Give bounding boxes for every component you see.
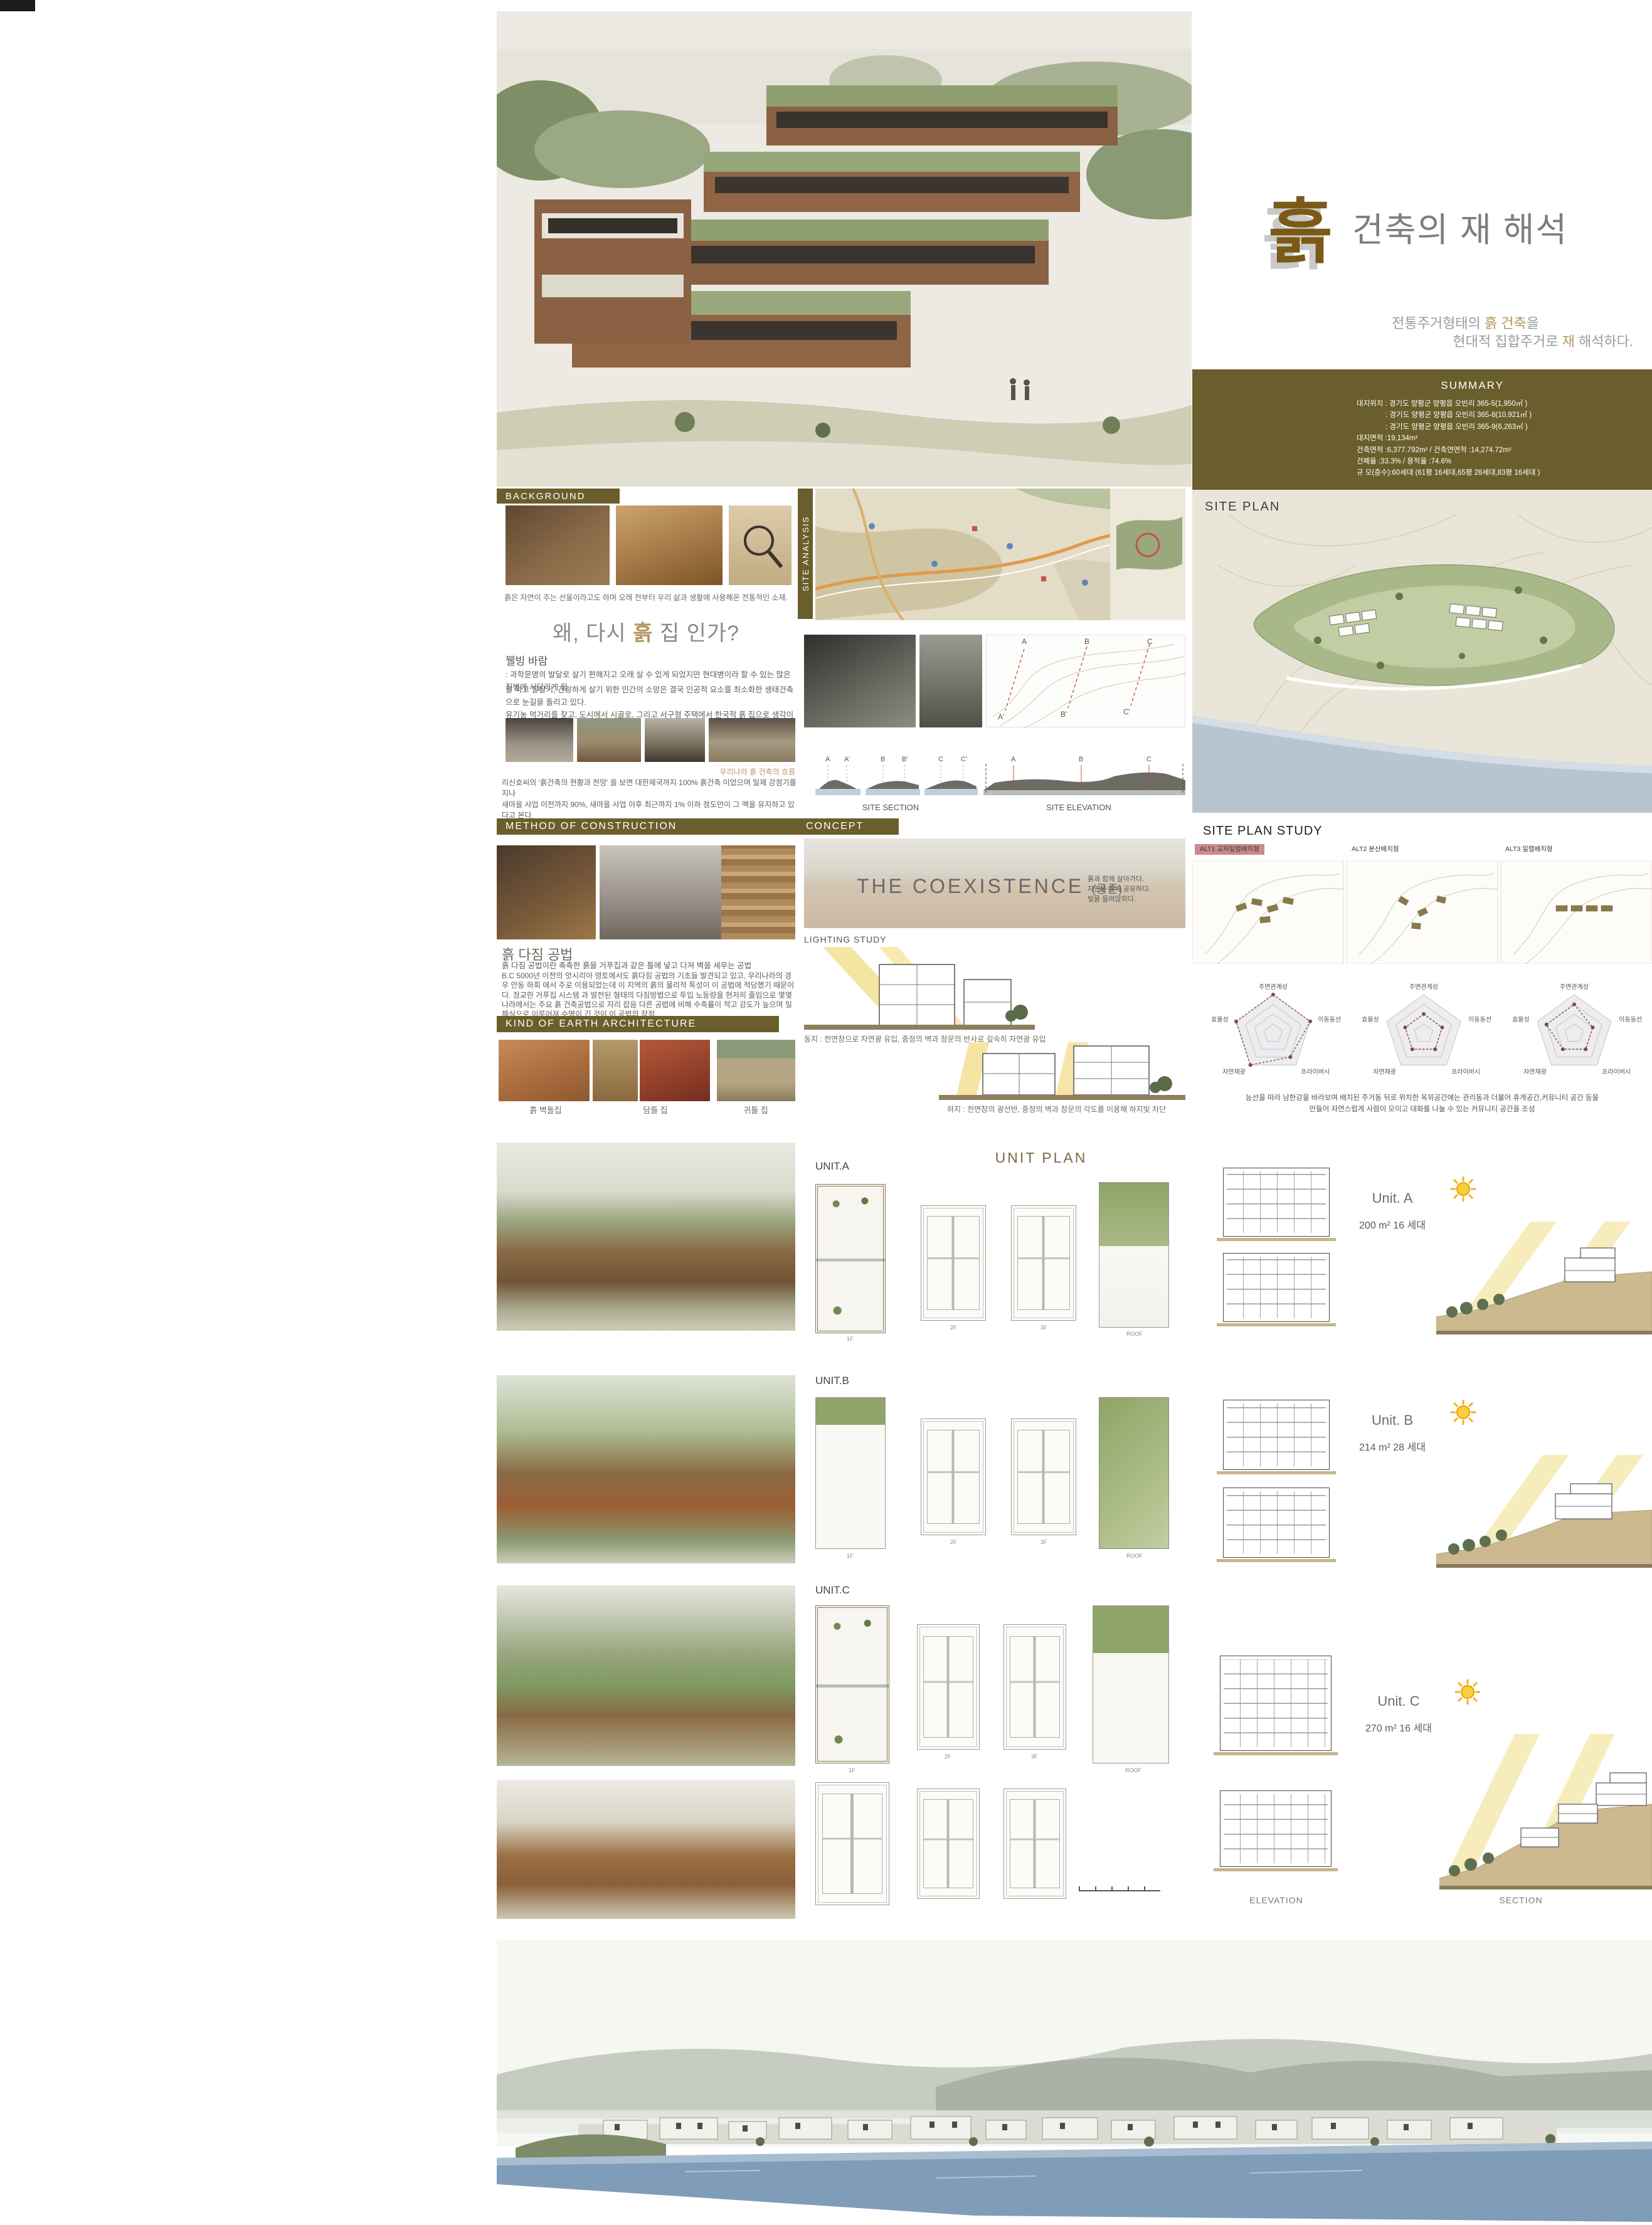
study-heading: SITE PLAN STUDY bbox=[1203, 824, 1323, 838]
svg-text:B: B bbox=[1079, 756, 1083, 763]
svg-text:B': B' bbox=[902, 756, 908, 763]
page-title: 건축의 재 해석 bbox=[1352, 202, 1568, 251]
why-heading: 왜, 다시 흙 집 인가? bbox=[497, 616, 795, 647]
unit-a-floor-2: 2F bbox=[950, 1324, 957, 1331]
section-label: SECTION bbox=[1474, 1895, 1568, 1905]
construction-photo-1 bbox=[497, 845, 596, 939]
alt1-label: ALT1 교차일렬배치형 bbox=[1195, 844, 1264, 855]
site-analysis-label: SITE ANALYSIS bbox=[801, 492, 810, 615]
lighting-summer-caption: 하지 : 전면창의 광선반, 중정의 벽과 창문의 각도를 이용해 하지빛 차단 bbox=[947, 1104, 1166, 1114]
svg-text:자연채광: 자연채광 bbox=[1523, 1069, 1547, 1076]
hanok-photo-1 bbox=[506, 718, 573, 762]
unit-c-floor-roof: ROOF bbox=[1125, 1767, 1141, 1773]
unit-c-elevation-1 bbox=[1220, 1656, 1332, 1751]
svg-text:주변관계성: 주변관계성 bbox=[1409, 983, 1438, 991]
unit-a-info: 200 m² 16 세대 bbox=[1336, 1217, 1449, 1232]
summary-line: 건폐율 :33.3% / 용적율 :74.6% bbox=[1357, 456, 1620, 467]
svg-text:효율성: 효율성 bbox=[1211, 1016, 1229, 1023]
kind-photo-formwork-2 bbox=[640, 1040, 710, 1101]
unit-c-plan-lower-2 bbox=[917, 1789, 980, 1899]
svg-text:B: B bbox=[881, 756, 885, 763]
kind-header: KIND OF EARTH ARCHITECTURE bbox=[497, 1016, 779, 1032]
soil-photo-1 bbox=[506, 505, 610, 585]
unit-c-info: 270 m² 16 세대 bbox=[1342, 1720, 1455, 1735]
unit-c-hillside-section bbox=[1439, 1734, 1652, 1889]
method-paragraph-2: B.C 5000년 이전의 앗시리아 영토에서도 흙다짐 공법의 기초들 발견되… bbox=[502, 971, 797, 1020]
svg-text:이동동선: 이동동선 bbox=[1468, 1016, 1491, 1023]
summary-lines: 대지위치 : 경기도 양평군 양평읍 오빈리 365-5(1,950㎡ ) : … bbox=[1357, 398, 1620, 479]
kind-label-3: 귀틀 집 bbox=[718, 1104, 793, 1116]
site-plan-label: SITE PLAN bbox=[1205, 500, 1280, 514]
svg-text:주변관계성: 주변관계성 bbox=[1560, 983, 1589, 991]
summary-heading: SUMMARY bbox=[1441, 379, 1504, 392]
contour-sketch: A B C A' B' C' bbox=[986, 635, 1185, 727]
why-paragraph-2a: 잘 먹고 잘살기, 건강하게 살기 위한 인간의 소망은 결국 인공적 요소를 … bbox=[506, 684, 798, 709]
unit-b-plan-1f bbox=[815, 1397, 886, 1549]
background-header-label: BACKGROUND bbox=[506, 491, 586, 502]
unit-c-floor-1: 1F bbox=[849, 1767, 855, 1773]
unit-a-elevation-2 bbox=[1223, 1253, 1330, 1322]
analysis-map bbox=[815, 489, 1185, 620]
unit-b-tag: UNIT.B bbox=[815, 1375, 849, 1387]
alt2-label: ALT2 분산배치형 bbox=[1352, 844, 1399, 855]
svg-text:주변관계성: 주변관계성 bbox=[1259, 983, 1288, 991]
concept-title: THE COEXISTENCE (공존) bbox=[857, 875, 1123, 898]
summary-box: SUMMARY 대지위치 : 경기도 양평군 양평읍 오빈리 365-5(1,9… bbox=[1192, 369, 1652, 490]
svg-text:C': C' bbox=[961, 756, 967, 763]
sun-icon bbox=[1451, 1400, 1476, 1425]
unit-a-hillside-section bbox=[1436, 1222, 1652, 1334]
svg-text:자연채광: 자연채광 bbox=[1222, 1069, 1246, 1076]
page-subtitle: 전통주거형태의 흙 건축을 현대적 집합주거로 재 해석하다. bbox=[1229, 315, 1633, 351]
background-caption: 흙은 자연이 주는 선물이라고도 하며 오래 전부터 우리 삶과 생활에 사용해… bbox=[497, 592, 795, 603]
unit-c-floor-2: 2F bbox=[945, 1753, 951, 1760]
soil-photo-2 bbox=[616, 505, 723, 585]
unit-b-plan-3f bbox=[1011, 1419, 1076, 1535]
radar-chart-alt1: 주변관계성이동동선프라이버시자연채광효율성 bbox=[1204, 971, 1342, 1087]
site-elevation-title: SITE ELEVATION bbox=[997, 803, 1160, 812]
concept-line: 흙과 함께 살아가다. bbox=[1088, 875, 1150, 885]
summary-line: 대지위치 : 경기도 양평군 양평읍 오빈리 365-5(1,950㎡ ) bbox=[1357, 398, 1620, 410]
unit-c-floor-3: 3F bbox=[1031, 1753, 1038, 1760]
concept-header-label: CONCEPT bbox=[806, 821, 864, 832]
unit-render-3 bbox=[497, 1585, 795, 1766]
summary-line: 규 모(층수):60세대 (61평 16세대,65평 28세대,83평 16세대… bbox=[1357, 467, 1620, 478]
unit-a-elevation-1 bbox=[1223, 1168, 1330, 1237]
unit-c-ground-2 bbox=[1214, 1868, 1338, 1871]
unit-b-elevation-2 bbox=[1223, 1488, 1330, 1558]
site-section-title: SITE SECTION bbox=[834, 803, 947, 812]
unit-b-plan-roof bbox=[1099, 1397, 1169, 1549]
radar-chart-alt3: 주변관계성이동동선프라이버시자연채광효율성 bbox=[1505, 971, 1643, 1087]
aerial-photo-2 bbox=[919, 635, 982, 727]
unit-render-2 bbox=[497, 1375, 795, 1563]
study-caption-1: 능선을 따라 남한강을 바라보며 배치된 주거동 뒤로 위치한 옥외공간에는 관… bbox=[1192, 1092, 1652, 1102]
hanok-photo-3 bbox=[645, 718, 705, 762]
svg-text:이동동선: 이동동선 bbox=[1619, 1016, 1642, 1023]
flow-paragraph-line1: 리신호씨의 ‘흙건축의 현황과 전망’ 을 보면 대한제국까지 100% 흙건축… bbox=[502, 778, 797, 800]
hero-render bbox=[497, 11, 1192, 487]
unit-c-plan-roof bbox=[1093, 1605, 1169, 1763]
unit-a-plan-2f bbox=[921, 1205, 986, 1321]
corner-mark bbox=[0, 0, 35, 11]
wellbeing-subheading: 웰빙 바람 bbox=[506, 652, 548, 668]
unit-b-info: 214 m² 28 세대 bbox=[1336, 1439, 1449, 1454]
summary-line: 대지면적 :19,134m² bbox=[1357, 433, 1620, 444]
site-analysis-strip: SITE ANALYSIS bbox=[798, 489, 813, 619]
summary-line: 건축면적 :6,377.792m² / 건축연면적 :14,274.72m² bbox=[1357, 445, 1620, 456]
concept-line: 자연을 함께 공유하다. bbox=[1088, 885, 1150, 895]
subtitle-line-2: 현대적 집합주거로 재 해석하다. bbox=[1229, 333, 1633, 351]
unit-c-name: Unit. C bbox=[1348, 1693, 1449, 1710]
aerial-photo-1 bbox=[804, 635, 916, 727]
scale-bar bbox=[1079, 1886, 1160, 1891]
concept-header: CONCEPT bbox=[797, 818, 899, 835]
alt3-label: ALT3 일렬배치형 bbox=[1505, 844, 1553, 855]
sun-icon bbox=[1451, 1176, 1476, 1202]
svg-text:이동동선: 이동동선 bbox=[1318, 1016, 1341, 1023]
summary-line: : 경기도 양평군 양평읍 오빈리 365-8(10,921㎡ ) bbox=[1357, 410, 1620, 421]
unit-b-elevation-1 bbox=[1223, 1400, 1330, 1470]
svg-text:A': A' bbox=[998, 712, 1004, 721]
magnifier-icon bbox=[729, 505, 792, 585]
hanok-photo-4 bbox=[709, 718, 795, 762]
concept-image: THE COEXISTENCE (공존) 흙과 함께 살아가다. 자연을 함께 … bbox=[804, 838, 1185, 928]
unit-b-floor-2: 2F bbox=[950, 1539, 957, 1545]
svg-text:프라이버시: 프라이버시 bbox=[1451, 1069, 1480, 1076]
unit-plan-title: UNIT PLAN bbox=[966, 1149, 1116, 1166]
soil-photo-3 bbox=[729, 505, 792, 585]
method-paragraph-1: 흙 다짐 공법이란 축축한 흙을 거푸집과 같은 틀에 넣고 다져 벽을 세우는… bbox=[502, 961, 797, 971]
elevation-label: ELEVATION bbox=[1229, 1895, 1323, 1905]
unit-b-ground-1 bbox=[1217, 1471, 1336, 1474]
lighting-heading: LIGHTING STUDY bbox=[804, 934, 886, 944]
radar-chart-alt2: 주변관계성이동동선프라이버시자연채광효율성 bbox=[1355, 971, 1493, 1087]
background-header: BACKGROUND bbox=[497, 489, 620, 504]
svg-text:자연채광: 자연채광 bbox=[1373, 1069, 1396, 1076]
sun-icon bbox=[1455, 1679, 1480, 1704]
unit-render-4 bbox=[497, 1780, 795, 1919]
svg-text:A: A bbox=[825, 756, 830, 763]
svg-text:프라이버시: 프라이버시 bbox=[1301, 1069, 1330, 1076]
panorama-elevation-image bbox=[497, 1940, 1652, 2222]
kind-label-1: 흙 벽돌집 bbox=[508, 1104, 583, 1116]
svg-text:C: C bbox=[1146, 756, 1152, 763]
unit-a-floor-3: 3F bbox=[1040, 1324, 1047, 1331]
subtitle-line-1: 전통주거형태의 흙 건축을 bbox=[1229, 315, 1539, 333]
svg-text:효율성: 효율성 bbox=[1362, 1016, 1379, 1023]
kind-photo-brick bbox=[499, 1040, 590, 1101]
kind-photo-formwork-1 bbox=[593, 1040, 638, 1101]
svg-text:A: A bbox=[1022, 637, 1027, 646]
alt-thumbnails bbox=[1192, 860, 1652, 964]
unit-a-tag: UNIT.A bbox=[815, 1160, 849, 1173]
unit-c-plan-lower-1 bbox=[815, 1782, 889, 1905]
unit-b-floor-3: 3F bbox=[1040, 1539, 1047, 1545]
unit-a-ground-2 bbox=[1217, 1323, 1336, 1326]
svg-text:효율성: 효율성 bbox=[1512, 1016, 1530, 1023]
flow-caption: 우리나라 흙 건축의 흐름 bbox=[497, 766, 795, 777]
unit-c-plan-lower-3 bbox=[1003, 1789, 1066, 1899]
unit-a-plan-3f bbox=[1011, 1205, 1076, 1321]
svg-text:A: A bbox=[1011, 756, 1016, 763]
unit-a-floor-roof: ROOF bbox=[1126, 1331, 1143, 1337]
lighting-summer-diagram bbox=[939, 1042, 1185, 1100]
concept-lines: 흙과 함께 살아가다. 자연을 함께 공유하다. 빛을 들여앉히다. bbox=[1088, 875, 1150, 905]
concept-line: 빛을 들여앉히다. bbox=[1088, 895, 1150, 905]
unit-b-floor-roof: ROOF bbox=[1126, 1553, 1143, 1559]
unit-b-name: Unit. B bbox=[1342, 1412, 1443, 1429]
unit-b-ground-2 bbox=[1217, 1559, 1336, 1562]
unit-a-plan-1f bbox=[815, 1184, 886, 1333]
flow-paragraph: 리신호씨의 ‘흙건축의 현황과 전망’ 을 보면 대한제국까지 100% 흙건축… bbox=[502, 778, 797, 822]
lighting-winter-diagram bbox=[804, 947, 1035, 1030]
title-block: 흙 흙 건축의 재 해석 전통주거형태의 흙 건축을 현대적 집합주거로 재 해… bbox=[1229, 163, 1652, 364]
unit-c-plan-3f bbox=[1003, 1624, 1066, 1750]
svg-text:프라이버시: 프라이버시 bbox=[1602, 1069, 1631, 1076]
method-header-label: METHOD OF CONSTRUCTION bbox=[506, 821, 677, 832]
hanok-photo-2 bbox=[577, 718, 641, 762]
unit-c-ground-1 bbox=[1214, 1752, 1338, 1755]
svg-text:C': C' bbox=[1123, 707, 1130, 716]
svg-text:C: C bbox=[1147, 637, 1153, 646]
unit-b-floor-1: 1F bbox=[847, 1553, 854, 1559]
unit-a-floor-1: 1F bbox=[847, 1336, 854, 1342]
site-plan-panel: SITE PLAN bbox=[1192, 490, 1652, 813]
unit-render-1 bbox=[497, 1143, 795, 1331]
svg-text:C: C bbox=[938, 756, 943, 763]
study-caption-2: 만들어 자연스럽게 사람이 모이고 대화를 나눌 수 있는 커뮤니티 공간을 조… bbox=[1192, 1104, 1652, 1114]
svg-text:B': B' bbox=[1061, 710, 1067, 719]
construction-photo-3 bbox=[721, 845, 795, 939]
kind-label-2: 담틀 집 bbox=[618, 1104, 693, 1116]
svg-text:B: B bbox=[1084, 637, 1089, 646]
unit-c-plan-2f bbox=[917, 1624, 980, 1750]
unit-a-name: Unit. A bbox=[1342, 1190, 1443, 1207]
unit-a-plan-roof bbox=[1099, 1182, 1169, 1328]
svg-text:A': A' bbox=[844, 756, 850, 763]
summary-line: : 경기도 양평군 양평읍 오빈리 365-9(6,263㎡ ) bbox=[1357, 421, 1620, 433]
logo-char: 흙 bbox=[1268, 176, 1333, 277]
unit-c-plan-1f bbox=[815, 1605, 889, 1763]
unit-b-hillside-section bbox=[1436, 1455, 1652, 1568]
kind-header-label: KIND OF EARTH ARCHITECTURE bbox=[506, 1018, 696, 1030]
unit-a-ground-1 bbox=[1217, 1238, 1336, 1241]
unit-c-tag: UNIT.C bbox=[815, 1584, 850, 1597]
kind-photo-log bbox=[717, 1040, 795, 1101]
site-section-diagrams: AA' BB' CC' A B C bbox=[815, 753, 1185, 801]
unit-c-elevation-2 bbox=[1220, 1790, 1332, 1867]
unit-b-plan-2f bbox=[921, 1419, 986, 1535]
